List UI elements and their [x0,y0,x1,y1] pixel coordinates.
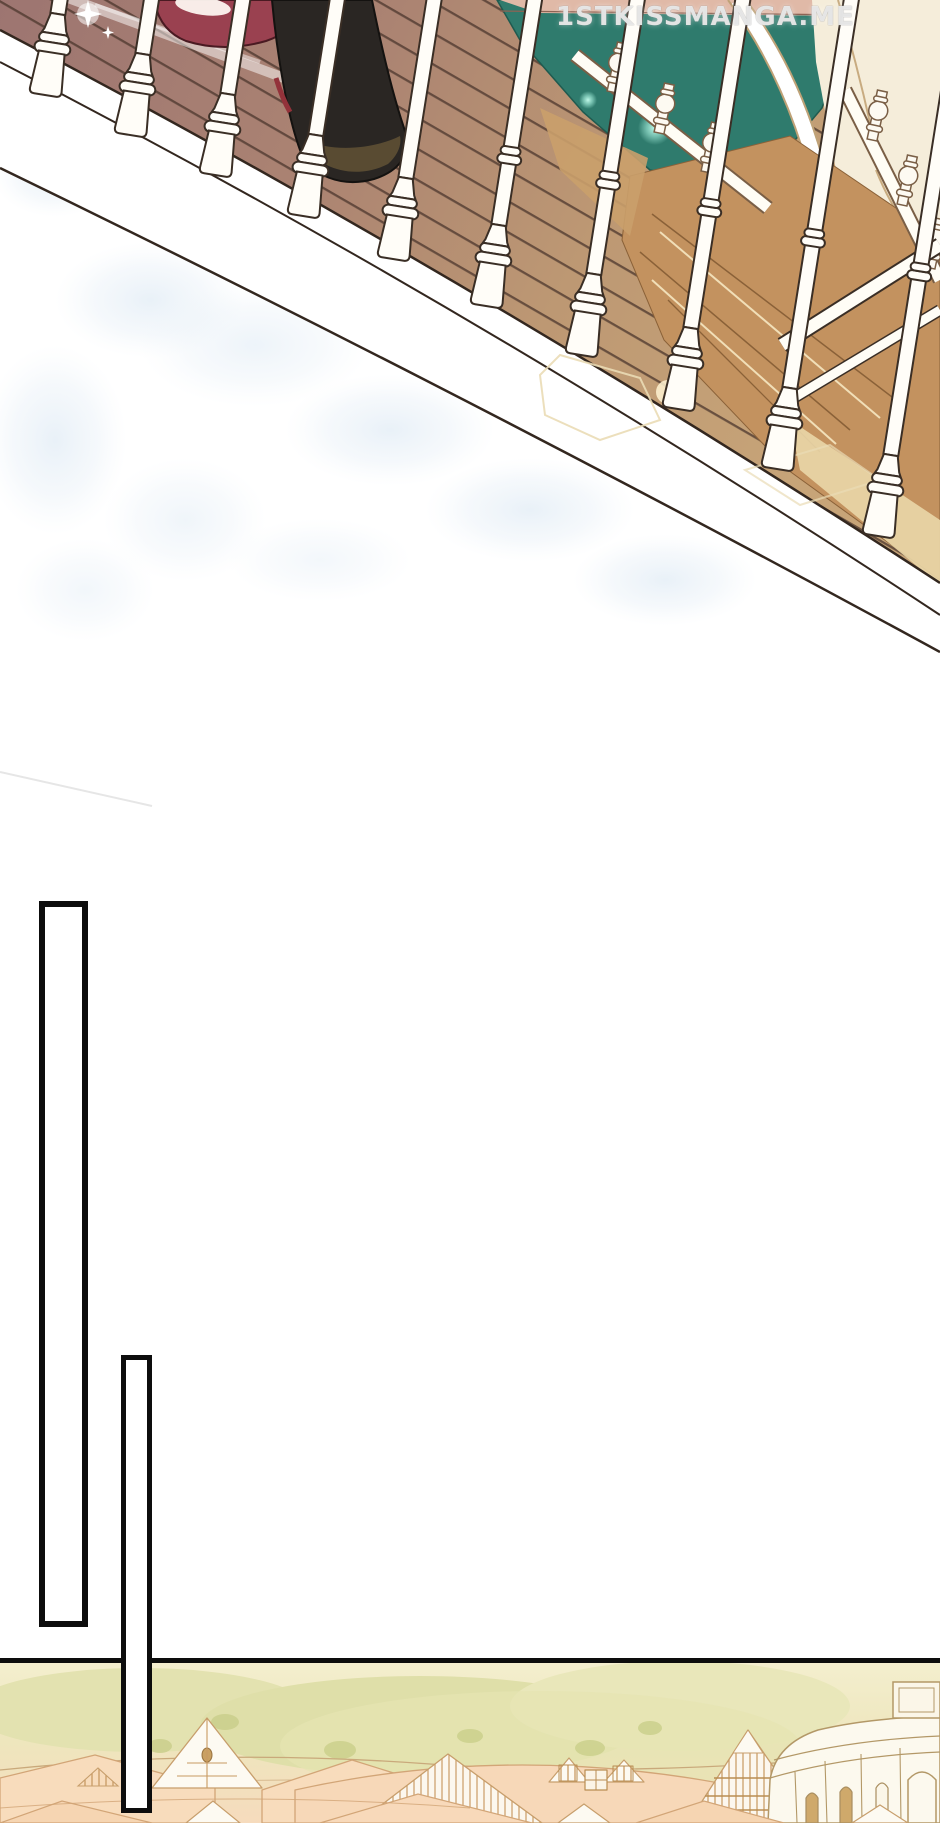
faint-edge-line [0,772,152,806]
terrace-scene [0,0,940,840]
comic-page: 1STKISSMANGA.ME [0,0,940,1823]
empty-vertical-panel-2 [121,1355,152,1813]
water-glow-small [579,91,597,109]
empty-vertical-panel-1 [39,901,88,1627]
watermark: 1STKISSMANGA.ME [556,2,940,32]
